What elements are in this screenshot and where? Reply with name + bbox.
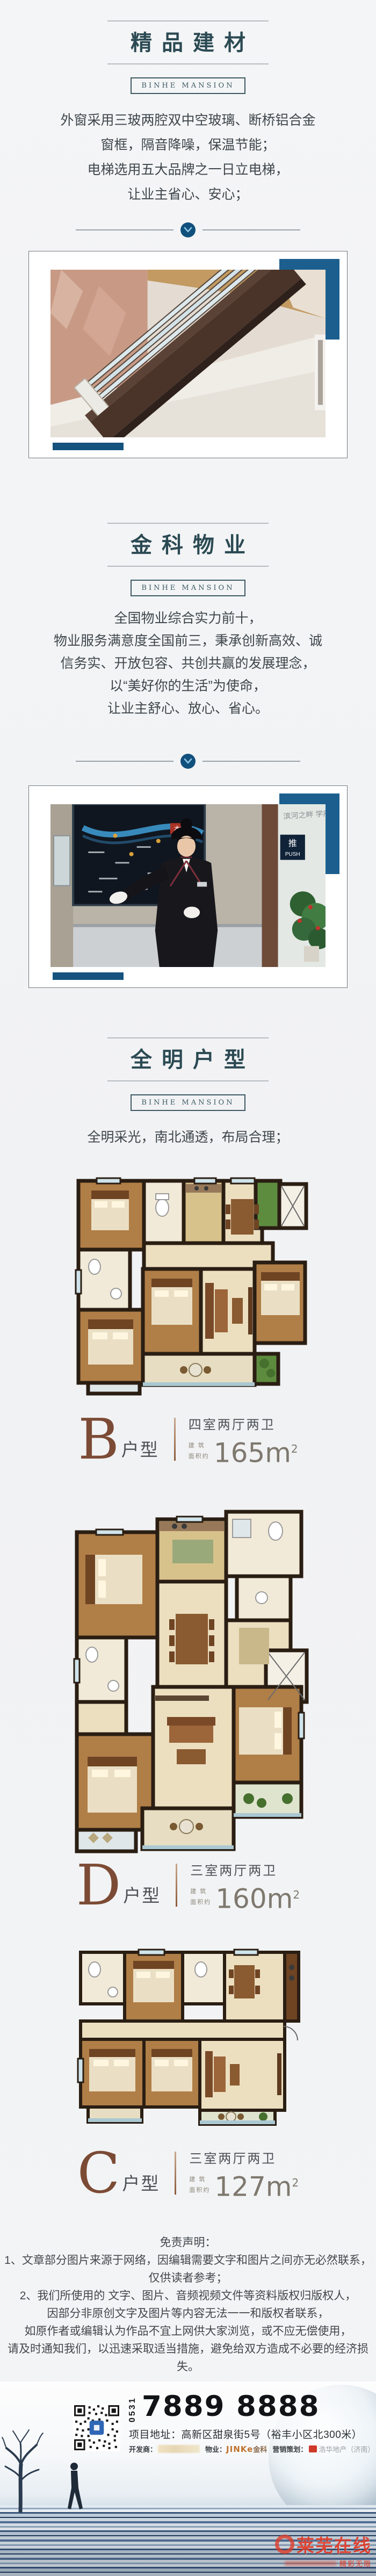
marketing-name: 浩华地产（济南） (319, 2444, 374, 2454)
disclaimer-line: 如原作者或编辑认为作品不宜上网供大家浏览，或不应无偿使用， (0, 2322, 376, 2340)
phone-row: 0531 7889 8888 (128, 2391, 320, 2422)
floorplan-paragraph: 全明采光，南北通透，布局合理； (0, 1125, 376, 1150)
watermark-subtext: 精彩无限 (339, 2558, 372, 2568)
paragraph-line: 物业服务满意度全国前三，秉承创新高效、诚 (0, 630, 376, 652)
disclaimer-title: 免责声明： (0, 2234, 376, 2252)
divider-line (76, 761, 173, 762)
materials-paragraph: 外窗采用三玻两腔双中空玻璃、断桥铝合金 窗框，隔音降噪，保温节能； 电梯选用五大… (0, 108, 376, 207)
floor-plan-c-image (70, 1946, 306, 2128)
footer: 0531 7889 8888 项目地址：高新区甜泉街5号（裕丰小区北300米） … (0, 2382, 376, 2576)
header-rule-top (107, 20, 269, 21)
section-header-materials: 精品建材 BINHE MANSION (0, 20, 376, 94)
area-label: 面积约 (189, 1452, 209, 1460)
floor-plan-d-image (62, 1509, 314, 1857)
developer-label: 开发商： (129, 2444, 157, 2454)
plan-letter: D (76, 1863, 121, 1907)
svg-text:PUSH: PUSH (285, 852, 300, 857)
paragraph-line: 全国物业综合实力前十， (0, 607, 376, 630)
area-code: 0531 (128, 2391, 138, 2422)
disclaimer-line: 请及时通知我们，以迅速采取适当措施，避免给双方造成不必要的经济损失。 (0, 2340, 376, 2376)
label-divider (176, 1864, 177, 1907)
area-label: 面积约 (189, 2185, 210, 2194)
plan-area: 160m2 (215, 1883, 300, 1911)
tree-silhouette (1, 2427, 44, 2513)
plan-c-label: C 户型 三室两厅两卫 建 筑 面积约 127m2 (0, 2150, 376, 2196)
section-title-materials: 精品建材 (0, 30, 376, 56)
plan-d-label: D 户型 三室两厅两卫 建 筑 面积约 160m2 (0, 1862, 376, 1908)
area-label: 建 筑 (189, 2175, 210, 2183)
plan-rooms: 三室两厅两卫 (189, 2148, 299, 2167)
blue-bar-accent (53, 443, 124, 450)
label-divider (175, 2152, 176, 2195)
disclaimer-line: 1、文章部分图片来源于网络，因编辑需要文字和图片之间亦无必然联系， (0, 2252, 376, 2269)
project-address: 项目地址：高新区甜泉街5号（裕丰小区北300米） (129, 2427, 362, 2441)
watermark-logo-icon (275, 2535, 294, 2554)
paragraph-line: 以“美好你的生活”为使命， (0, 675, 376, 697)
plan-area: 127m2 (214, 2171, 299, 2199)
section-divider (0, 222, 376, 238)
property-paragraph: 全国物业综合实力前十， 物业服务满意度全国前三，秉承创新高效、诚 信务实、开放包… (0, 607, 376, 720)
window-photo-frame (28, 251, 348, 458)
section-title-property: 金科物业 (0, 532, 376, 558)
plan-area: 165m2 (214, 1437, 298, 1465)
brand-badge: BINHE MANSION (131, 77, 245, 94)
plan-letter: C (77, 2151, 120, 2195)
paragraph-line: 电梯选用五大品牌之一日立电梯， (0, 157, 376, 182)
disclaimer: 免责声明： 1、文章部分图片来源于网络，因编辑需要文字和图片之间亦无必然联系， … (0, 2234, 376, 2376)
divider-line (203, 229, 300, 230)
disclaimer-line: 因部分非原创文字及图片等内容无法一一和版权者联系， (0, 2305, 376, 2322)
plan-suffix: 户型 (121, 1435, 159, 1461)
section-header-property: 金科物业 BINHE MANSION (0, 523, 376, 596)
watermark-url-blur (285, 2561, 336, 2566)
concierge-photo: 本案 滨河之畔 学府 推 PUSH (50, 804, 326, 967)
jinke-logo: JINKe (226, 2444, 253, 2454)
section-divider (0, 753, 376, 769)
watermark-text: 莱芜在线 (297, 2531, 372, 2557)
promo-page: 精品建材 BINHE MANSION 外窗采用三玻两腔双中空玻璃、断桥铝合金 窗… (0, 0, 376, 2576)
header-rule-top (107, 1037, 269, 1038)
walking-person-silhouette (63, 2462, 85, 2516)
paragraph-line: 窗框，隔音降噪，保温节能； (0, 133, 376, 157)
property-label: 物业： (205, 2444, 226, 2454)
plan-b-label: B 户型 四室两厅两卫 建 筑 面积约 165m2 (0, 1416, 376, 1462)
disclaimer-line: 仅供读者参考； (0, 2269, 376, 2287)
label-divider (174, 1418, 176, 1461)
floor-plan-b-image (67, 1175, 309, 1397)
plan-suffix: 户型 (122, 2169, 160, 2195)
chevron-down-icon (180, 754, 196, 769)
divider-line (203, 761, 300, 762)
site-watermark: 莱芜在线 精彩无限 (275, 2531, 372, 2568)
plan-rooms: 四室两厅两卫 (189, 1414, 298, 1433)
partner-logos-row: 开发商： 物业： JINKe 金科 营销策划： 浩华地产（济南） (129, 2444, 374, 2454)
brand-badge: BINHE MANSION (131, 580, 245, 596)
window-photo (50, 270, 326, 437)
marketing-logo-icon (309, 2445, 317, 2452)
disclaimer-line: 2、我们所使用的 文字、图片、音频视频文件等资料版权归版权人， (0, 2287, 376, 2305)
area-label: 建 筑 (190, 1887, 211, 1895)
area-label: 建 筑 (189, 1441, 209, 1449)
plan-suffix: 户型 (123, 1881, 161, 1907)
brand-badge: BINHE MANSION (131, 1094, 245, 1111)
marketing-label: 营销策划： (272, 2444, 307, 2454)
paragraph-line: 让业主省心、安心； (0, 182, 376, 207)
paragraph-line: 外窗采用三玻两腔双中空玻璃、断桥铝合金 (0, 108, 376, 133)
paragraph-line: 全明采光，南北通透，布局合理； (0, 1125, 376, 1150)
phone-number: 7889 8888 (142, 2391, 320, 2422)
concierge-photo-frame: 本案 滨河之畔 学府 推 PUSH (28, 785, 348, 988)
header-rule-top (107, 523, 269, 524)
chevron-down-icon (180, 222, 196, 237)
blue-bar-accent (53, 972, 124, 980)
svg-text:推: 推 (288, 839, 297, 848)
developer-logo (158, 2445, 200, 2453)
plan-rooms: 三室两厅两卫 (190, 1860, 300, 1879)
qr-code (73, 2404, 120, 2451)
area-label: 面积约 (190, 1897, 211, 1906)
paragraph-line: 信务实、开放包容、共创共赢的发展理念， (0, 652, 376, 675)
section-title-floorplan: 全明户型 (0, 1047, 376, 1073)
paragraph-line: 让业主舒心、放心、省心。 (0, 697, 376, 720)
plan-letter: B (78, 1417, 119, 1461)
section-header-floorplan: 全明户型 BINHE MANSION (0, 1037, 376, 1111)
divider-line (76, 229, 173, 230)
jinke-logo-cn: 金科 (253, 2444, 267, 2454)
